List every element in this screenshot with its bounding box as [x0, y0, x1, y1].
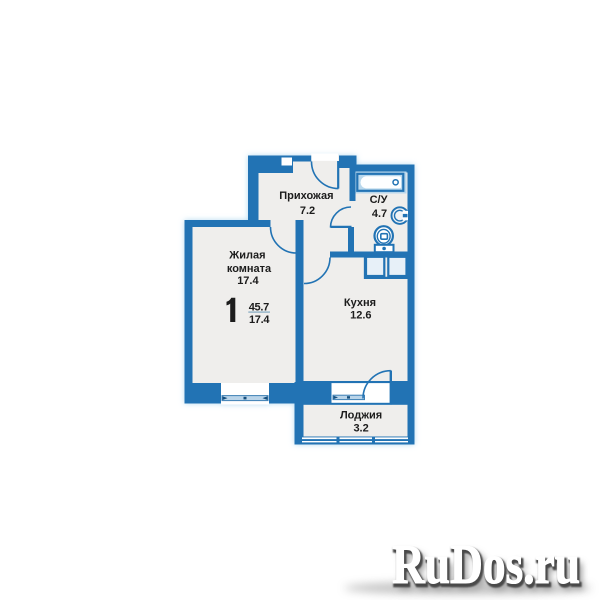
svg-text:Лоджия: Лоджия	[340, 410, 382, 422]
svg-text:4.7: 4.7	[372, 208, 387, 220]
svg-text:Прихожая: Прихожая	[279, 190, 333, 202]
svg-text:С/У: С/У	[370, 194, 388, 206]
svg-text:Жилая: Жилая	[228, 249, 265, 261]
svg-text:Кухня: Кухня	[344, 297, 376, 309]
svg-text:7.2: 7.2	[300, 205, 315, 217]
svg-text:17.4: 17.4	[249, 314, 270, 326]
svg-text:3.2: 3.2	[353, 423, 368, 435]
svg-text:комната: комната	[227, 263, 272, 275]
svg-text:17.4: 17.4	[237, 275, 259, 287]
svg-text:12.6: 12.6	[350, 309, 371, 321]
